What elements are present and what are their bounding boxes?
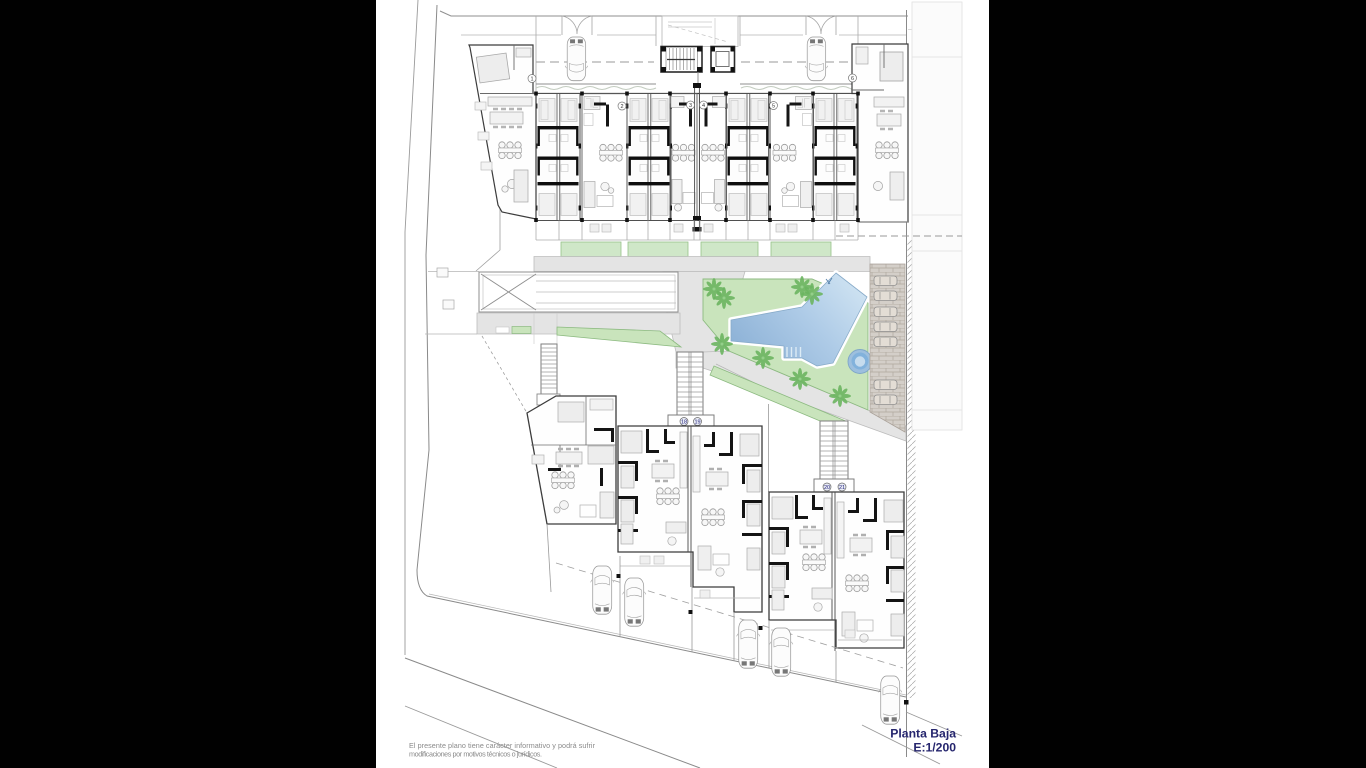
svg-text:5: 5 xyxy=(772,104,775,110)
svg-text:21: 21 xyxy=(839,485,845,491)
svg-text:2: 2 xyxy=(620,104,623,110)
svg-text:modificaciones por motivos téc: modificaciones por motivos técnicos o ju… xyxy=(409,750,542,759)
svg-text:1: 1 xyxy=(530,77,533,83)
svg-text:E:1/200: E:1/200 xyxy=(913,741,956,755)
svg-text:18: 18 xyxy=(681,420,687,426)
svg-text:19: 19 xyxy=(694,420,700,426)
svg-text:Planta Baja: Planta Baja xyxy=(890,727,956,741)
svg-text:20: 20 xyxy=(824,485,830,491)
svg-text:4: 4 xyxy=(702,103,705,109)
svg-text:3: 3 xyxy=(689,103,692,109)
svg-text:6: 6 xyxy=(851,76,854,82)
